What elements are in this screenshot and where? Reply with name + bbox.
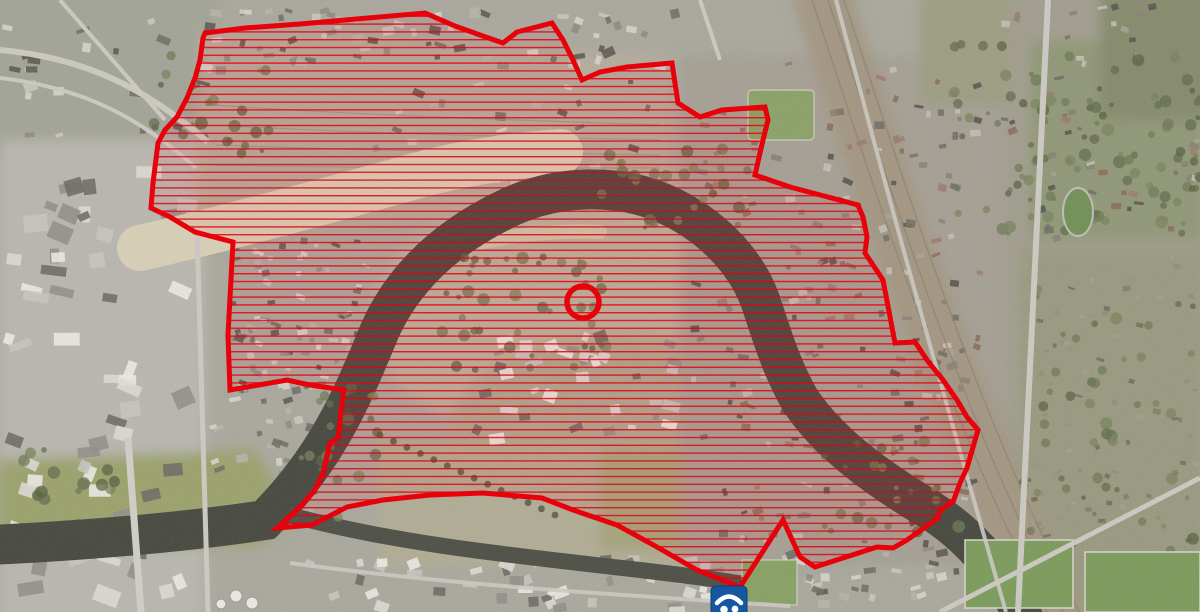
shelter-icon-background [711, 586, 747, 612]
shelter-icon[interactable] [711, 586, 747, 612]
map-viewport[interactable] [0, 0, 1200, 612]
